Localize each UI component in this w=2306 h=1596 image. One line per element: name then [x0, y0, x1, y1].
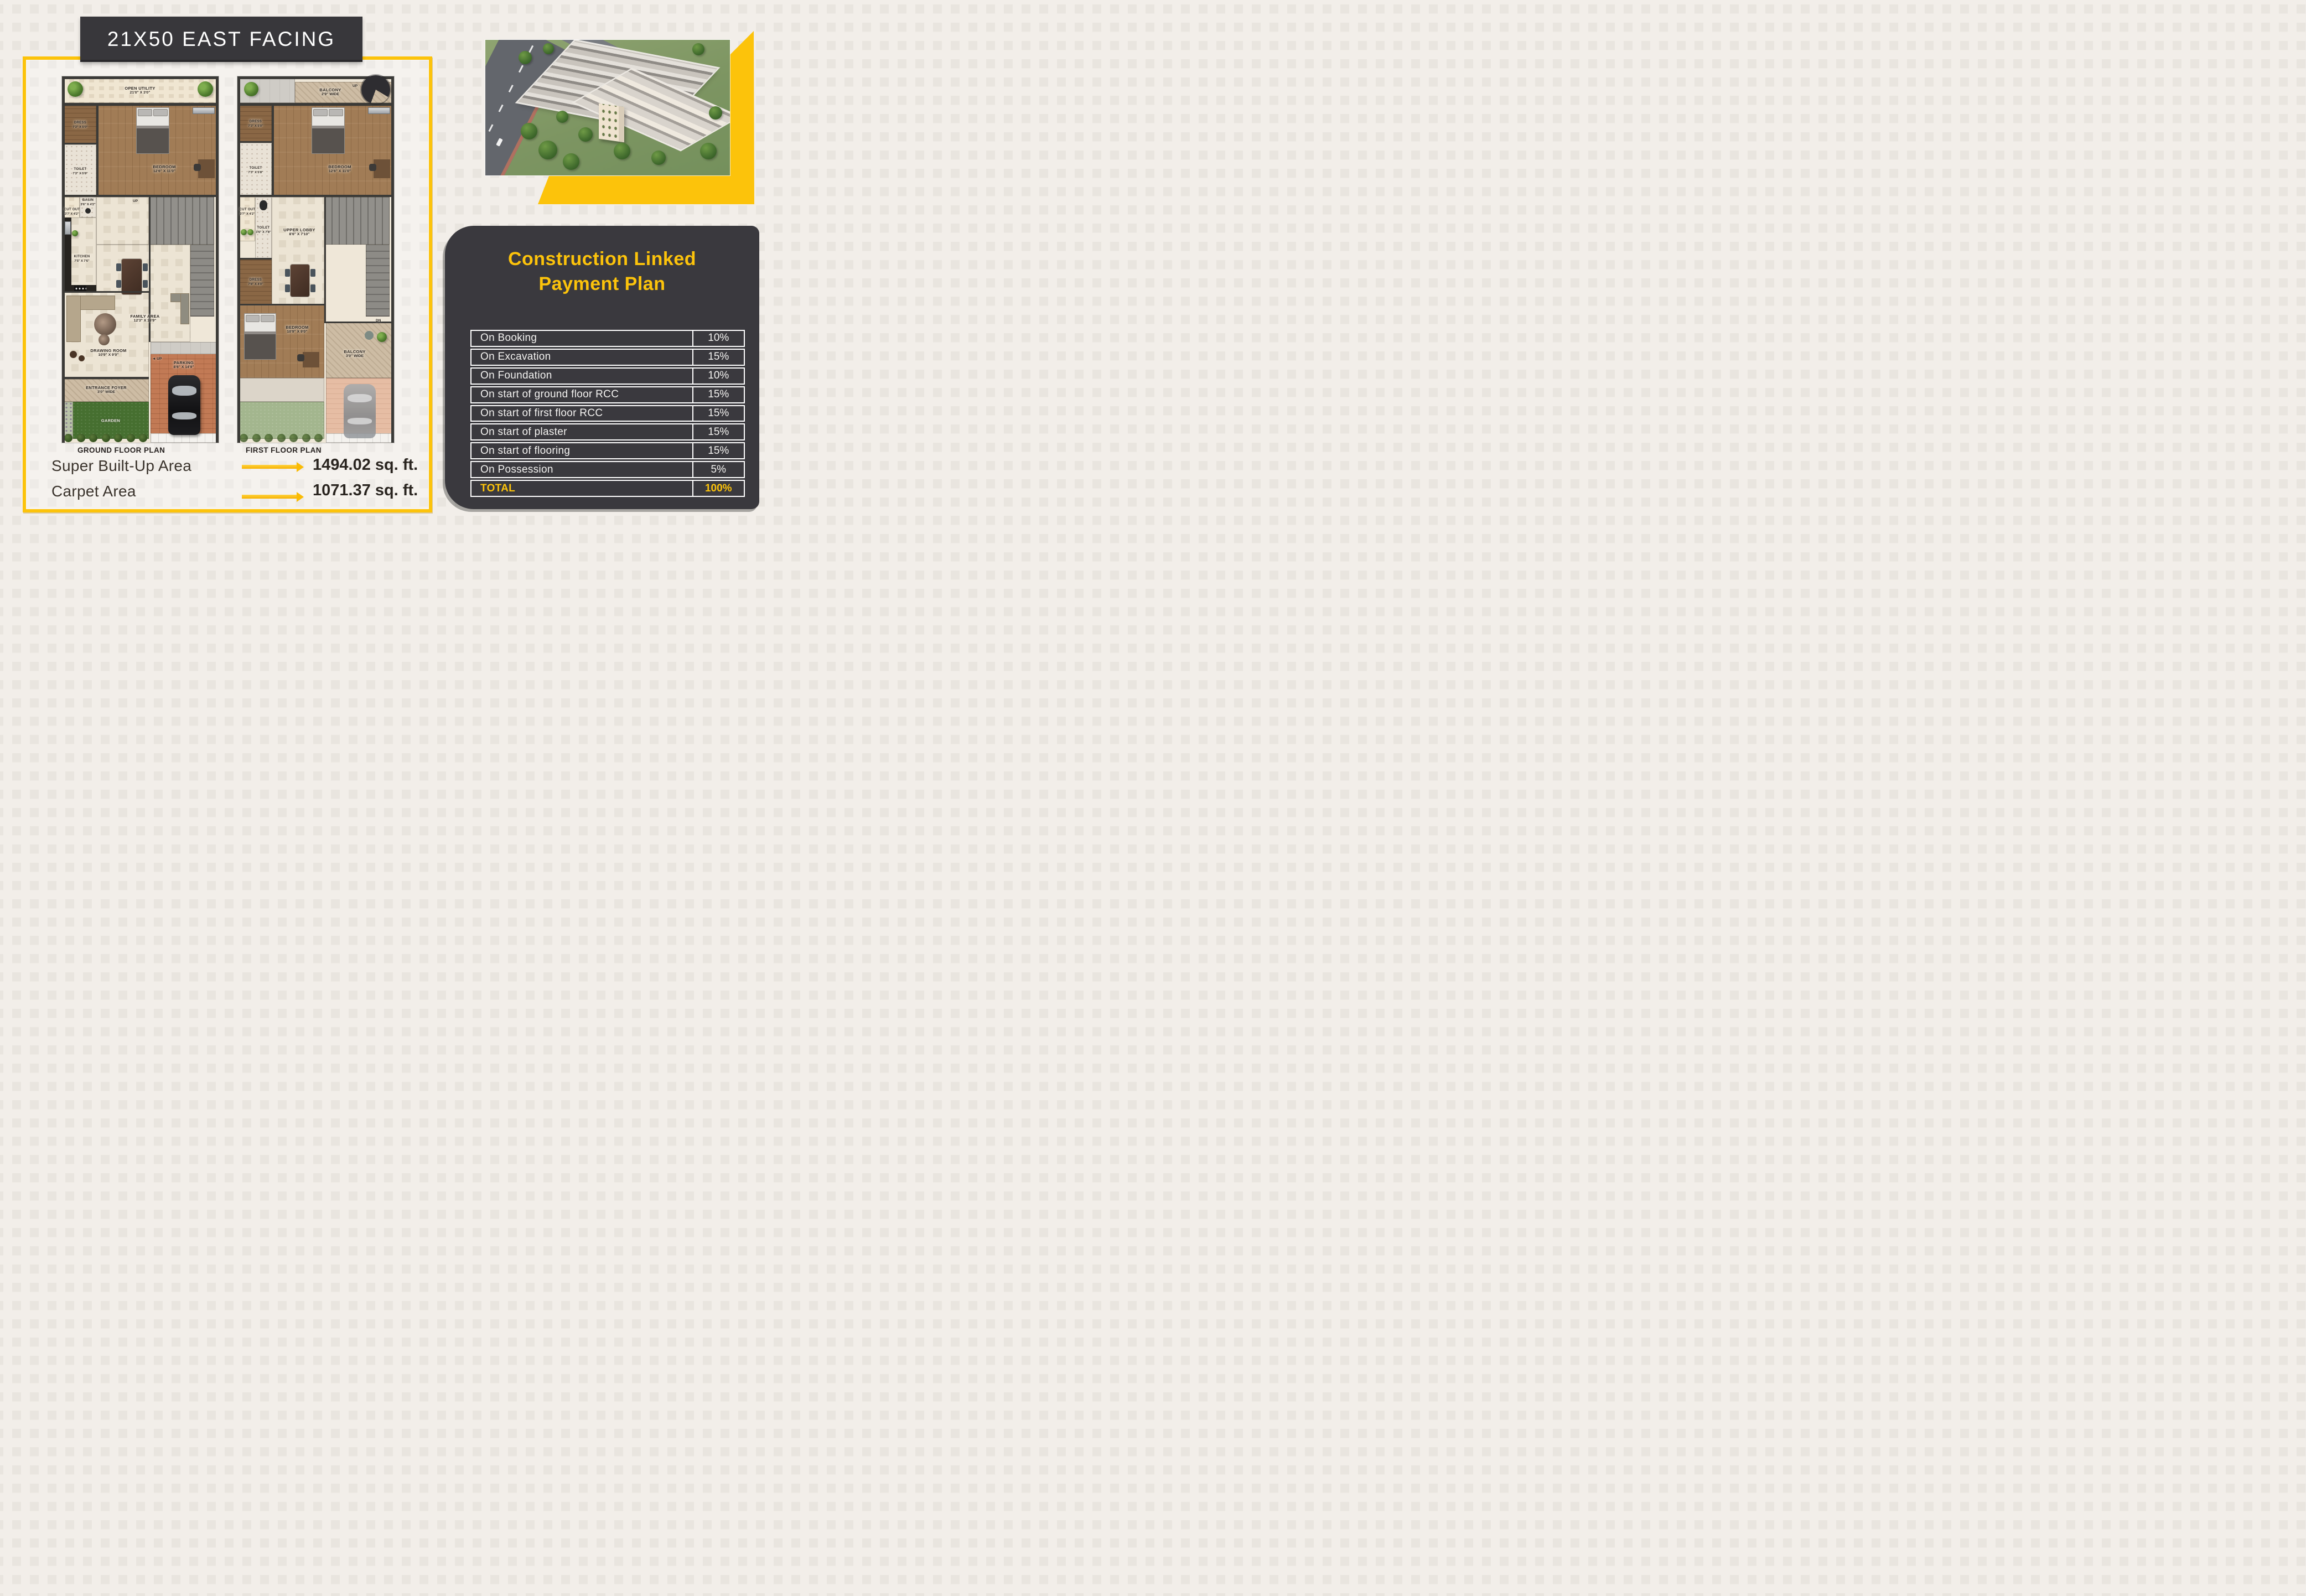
chair-icon: [143, 263, 148, 271]
arrow-icon: [242, 495, 297, 499]
room-label-toilet: TOILET 7'3" X 5'8": [248, 167, 263, 174]
plant-icon: [247, 229, 253, 235]
chair-icon: [143, 280, 148, 288]
table-row: On Possession 5%: [470, 461, 745, 478]
table-row: On Foundation 10%: [470, 367, 745, 385]
chair-icon: [116, 280, 121, 288]
bed-icon: [136, 107, 169, 154]
first-floor-plan: BALCONY 2'9" WIDE UP DRESS 7'3" X 5'0" T…: [237, 76, 394, 443]
wardrobe-counter-icon: [193, 107, 215, 114]
room-label-balcony: BALCONY 2'9" WIDE: [319, 87, 341, 97]
first-plan-caption: FIRST FLOOR PLAN: [246, 446, 322, 454]
wall: [96, 106, 99, 196]
room-label-balcony2: BALCONY 3'0" WIDE: [344, 349, 365, 359]
staircase-flight: [190, 245, 214, 317]
room-label-dress2: DRESS 7'8" X 4'0": [248, 278, 263, 286]
basin-icon: [85, 208, 91, 214]
wall: [64, 195, 216, 197]
front-apartment-block: [599, 103, 624, 142]
room-label-bedroom2: BEDROOM 10'9" X 9'0": [286, 325, 308, 335]
wall: [62, 103, 219, 106]
sink-icon: [65, 221, 71, 235]
tree-icon: [556, 111, 568, 123]
ground-floor-plan: OPEN UTILITY 21'0" X 3'0" DRESS 7'2" X 5…: [62, 76, 219, 443]
wall: [240, 195, 392, 197]
chair-icon: [297, 354, 304, 361]
table-row: On start of ground floor RCC 15%: [470, 386, 745, 403]
ghost-garden: [240, 402, 324, 439]
super-built-up-value: 1494.02 sq. ft.: [313, 456, 418, 474]
desk-icon: [303, 352, 319, 367]
wall: [240, 258, 272, 260]
staircase-landing: [149, 197, 214, 245]
chair-icon: [194, 164, 201, 171]
chair-icon: [369, 164, 376, 171]
room-label-open-utility: OPEN UTILITY 21'0" X 3'0": [125, 86, 155, 96]
room-label-upper-lobby: UPPER LOBBY 8'6" X 7'10": [283, 227, 315, 237]
wall: [64, 291, 149, 293]
stairs-dn-label: DN: [376, 319, 381, 323]
table-row: On start of plaster 15%: [470, 423, 745, 441]
stairs-up-label: UP: [353, 84, 357, 88]
payment-plan-table: On Booking 10% On Excavation 15% On Foun…: [470, 330, 745, 497]
room-label-cut-out: CUT OUT 3'7' X 4'2": [64, 208, 80, 216]
spiral-stair-icon: [361, 75, 390, 104]
chair-icon: [310, 284, 315, 292]
table-row: On Excavation 15%: [470, 349, 745, 366]
tree-icon: [700, 143, 717, 159]
chair-icon: [285, 284, 290, 292]
wall: [324, 197, 326, 323]
room-label-drawing-room: DRAWING ROOM 10'9" X 9'0": [90, 348, 126, 358]
room-label-toilet2: TOILET 3'6" X 7'8": [256, 226, 271, 234]
parking-up-label: ◄ UP: [152, 357, 162, 361]
room-label-toilet: TOILET 7'2" X 5'8": [72, 168, 87, 175]
sofa-icon: [66, 296, 81, 342]
table-row-total: TOTAL 100%: [470, 480, 745, 497]
arrow-icon: [242, 465, 297, 469]
table-row: On Booking 10%: [470, 330, 745, 347]
tree-icon: [614, 143, 630, 159]
counter-icon: [368, 107, 390, 114]
tree-icon: [578, 127, 593, 142]
plant-icon: [72, 230, 78, 236]
staircase-landing: [324, 197, 390, 245]
bed-icon: [312, 107, 345, 154]
staircase-flight: [366, 245, 390, 317]
plant-icon: [377, 332, 387, 342]
site-render-photo: [485, 40, 730, 175]
flower-bed: [64, 402, 73, 439]
car-icon: [168, 375, 200, 435]
room-label-entrance-foyer: ENTRANCE FOYER 3'0" WIDE: [86, 385, 127, 395]
tree-icon: [543, 43, 554, 54]
tree-icon: [538, 141, 557, 159]
tree-icon: [709, 106, 722, 120]
hall-passage: [96, 197, 149, 245]
payment-plan-title: Construction Linked Payment Plan: [445, 247, 759, 297]
stool-icon: [70, 351, 77, 358]
ghost-foyer: [240, 378, 324, 402]
room-label-bedroom: BEDROOM 12'6" X 11'0": [328, 164, 351, 174]
room-label-family-area: FAMILY AREA 12'3" X 16'9": [130, 314, 159, 324]
plant-icon: [68, 81, 83, 97]
room-label-garden: GARDEN: [101, 418, 120, 423]
chair-icon: [365, 331, 374, 340]
wall: [64, 143, 96, 144]
room-label-cut-out: CUT OUT 3'7" X 4'2": [240, 208, 256, 216]
sofa-icon: [180, 293, 189, 324]
wall: [272, 106, 274, 196]
chair-icon: [310, 269, 315, 277]
title-banner: 21X50 EAST FACING: [80, 17, 362, 62]
hedge-row: [240, 434, 323, 442]
tree-icon: [521, 123, 537, 139]
dining-table-icon: [122, 259, 142, 294]
rug-icon: [94, 313, 116, 335]
tree-icon: [651, 151, 666, 165]
room-label-dress: DRESS 7'2" X 5'0": [72, 121, 87, 129]
stairs-up-label: UP: [133, 199, 138, 203]
chair-icon: [285, 269, 290, 277]
super-built-up-label: Super Built-Up Area: [51, 457, 191, 475]
wall: [240, 141, 272, 143]
room-label-parking: PARKING 8'6" X 14'9": [174, 360, 194, 370]
car-icon: [344, 384, 376, 438]
table-row: On start of flooring 15%: [470, 442, 745, 459]
carpet-area-value: 1071.37 sq. ft.: [313, 481, 418, 500]
wall: [64, 377, 149, 379]
wall: [240, 304, 324, 305]
tree-icon: [692, 43, 704, 55]
plant-icon: [241, 229, 247, 235]
chair-icon: [116, 263, 121, 271]
plant-icon: [198, 81, 213, 97]
plant-icon: [244, 82, 258, 96]
rug-icon: [99, 334, 110, 345]
room-label-kitchen: KITCHEN 7'5" X 7'6": [74, 255, 90, 263]
parking-apron: [151, 342, 216, 354]
table-row: On start of first floor RCC 15%: [470, 405, 745, 422]
tree-icon: [563, 153, 579, 170]
page-title: 21X50 EAST FACING: [107, 28, 335, 51]
tree-icon: [519, 51, 532, 64]
room-label-basin: BASIN 3'6" X 4'2": [80, 199, 95, 206]
bed-icon: [244, 313, 276, 360]
room-label-bedroom: BEDROOM 12'6" X 11'0": [153, 164, 175, 174]
room-label-dress: DRESS 7'3" X 5'0": [248, 120, 263, 128]
carpet-area-label: Carpet Area: [51, 483, 136, 500]
wall: [324, 322, 392, 323]
hedge-row: [64, 434, 147, 442]
stool-icon: [79, 355, 85, 361]
payment-plan-panel: Construction Linked Payment Plan On Book…: [445, 226, 759, 509]
ground-plan-caption: GROUND FLOOR PLAN: [77, 446, 165, 454]
wc-icon: [260, 200, 267, 210]
wall: [237, 103, 394, 106]
table-icon: [291, 265, 309, 297]
